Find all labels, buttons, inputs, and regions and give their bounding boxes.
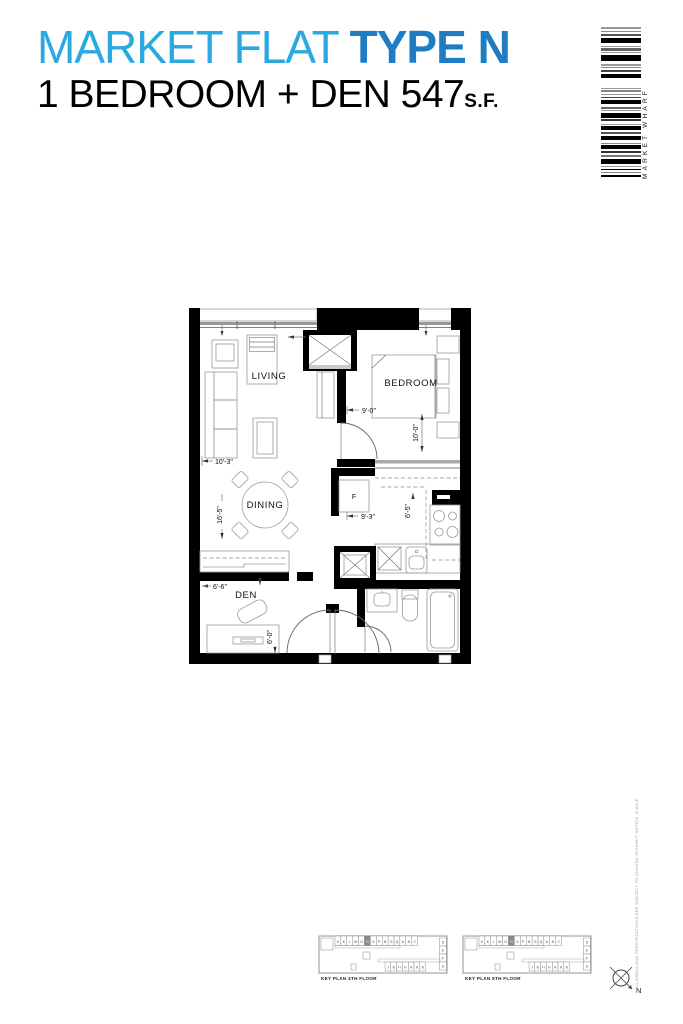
bathroom <box>365 589 458 652</box>
subtitle-units: S.F. <box>464 91 499 112</box>
svg-text:M: M <box>354 940 357 944</box>
svg-text:F: F <box>586 957 588 961</box>
key-plan-5th-floor: KKLMONSPBOQABCDEFGJBHHHHB <box>462 929 594 977</box>
bedroom-balcony-edge <box>417 309 455 321</box>
title-type: TYPE N <box>350 21 510 73</box>
bedroom-door <box>341 423 377 459</box>
barcode-icon <box>601 27 641 177</box>
laundry-closet <box>334 546 376 582</box>
key-plan-4th-floor: KKLMONSPBOQABCDEFGJBHHHHB <box>318 929 450 977</box>
svg-text:B: B <box>393 966 395 970</box>
bedroom-closet <box>375 460 460 487</box>
living-balcony-edge <box>199 309 317 321</box>
living-label: LIVING <box>252 371 287 382</box>
svg-text:M: M <box>498 940 501 944</box>
key-plan-5th-floor-label: KEY PLAN 5TH FLOOR <box>465 976 521 981</box>
dim-den-width: 6'-6" <box>213 584 227 591</box>
key-plan-4th-floor-label: KEY PLAN 4TH FLOOR <box>321 976 377 981</box>
title-plan-name: MARKET FLAT <box>37 21 350 73</box>
page-subtitle: 1 BEDROOM + DEN 547S.F. <box>37 73 597 117</box>
svg-text:Q: Q <box>396 940 399 944</box>
dim-bedroom-door: 9'-0" <box>362 408 376 415</box>
dining-label: DINING <box>247 500 284 511</box>
brand-vertical-text: MARKET WHARF <box>642 27 654 179</box>
svg-text:F: F <box>442 957 444 961</box>
dim-hall: 9'-3" <box>361 514 375 521</box>
brochure-page: MARKET FLAT TYPE N 1 BEDROOM + DEN 547S.… <box>0 0 683 1024</box>
svg-text:O: O <box>504 940 507 944</box>
dim-bedroom-depth: 10'-0" <box>413 424 420 442</box>
bedroom-label: BEDROOM <box>384 378 437 389</box>
svg-text:B: B <box>566 966 568 970</box>
floor-plan: F <box>189 308 471 664</box>
svg-text:L: L <box>493 940 495 944</box>
svg-text:B: B <box>422 966 424 970</box>
page-title: MARKET FLAT TYPE N <box>37 24 597 71</box>
den-label: DEN <box>235 590 257 601</box>
svg-text:O: O <box>390 940 393 944</box>
dim-den-depth: 6'-0" <box>267 630 274 644</box>
dim-dining-height: 16'-5" <box>217 506 224 524</box>
subtitle-text: 1 BEDROOM + DEN 547 <box>37 73 464 116</box>
dim-living-width: 10'-3" <box>215 459 233 466</box>
svg-text:B: B <box>537 966 539 970</box>
svg-text:Q: Q <box>540 940 543 944</box>
disclaimer-text: ALL AREAS AND SPECIFICATIONS ARE SUBJECT… <box>634 858 642 990</box>
header: MARKET FLAT TYPE N 1 BEDROOM + DEN 547S.… <box>37 24 597 117</box>
den-furniture <box>200 551 289 653</box>
svg-text:O: O <box>360 940 363 944</box>
dim-kitchen: 6'-5" <box>405 504 412 518</box>
svg-text:L: L <box>349 940 351 944</box>
svg-text:E: E <box>586 949 588 953</box>
closet-shaft <box>303 330 357 371</box>
svg-text:E: E <box>442 949 444 953</box>
fridge-label: F <box>352 494 356 501</box>
dimensions: 9'-0" 10'-0" 10'-3" 16'-5" 9'-3" 6'-5" 6… <box>202 406 424 653</box>
bathroom-door <box>365 626 391 652</box>
svg-text:O: O <box>534 940 537 944</box>
